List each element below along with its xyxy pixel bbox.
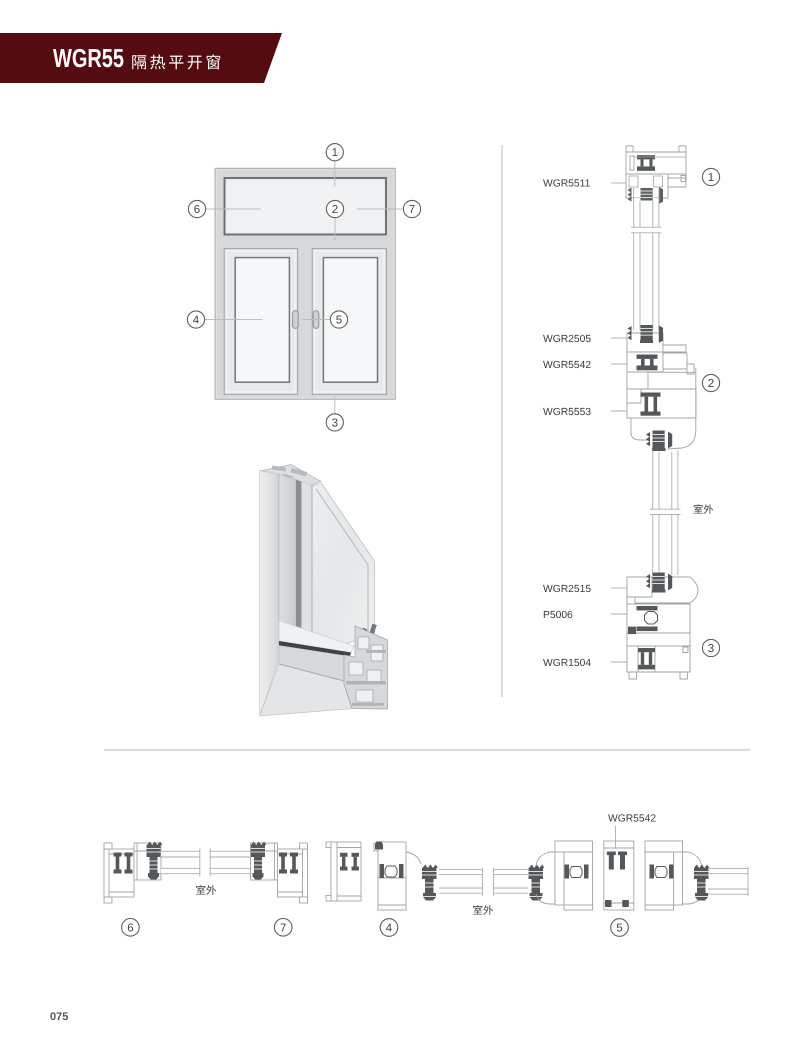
svg-text:WGR55: WGR55 xyxy=(53,43,124,73)
svg-text:4: 4 xyxy=(193,315,200,327)
svg-text:1: 1 xyxy=(708,172,714,184)
svg-text:室外: 室外 xyxy=(693,504,714,516)
svg-text:5: 5 xyxy=(616,923,622,935)
svg-text:7: 7 xyxy=(280,922,286,934)
svg-text:WGR2505: WGR2505 xyxy=(543,334,591,345)
svg-text:3: 3 xyxy=(332,417,338,429)
svg-text:2: 2 xyxy=(708,378,714,390)
svg-text:WGR5553: WGR5553 xyxy=(543,407,591,418)
svg-text:2: 2 xyxy=(332,204,338,216)
svg-text:隔热平开窗: 隔热平开窗 xyxy=(131,54,224,72)
svg-text:室外: 室外 xyxy=(196,885,217,897)
svg-text:3: 3 xyxy=(708,643,714,655)
svg-text:6: 6 xyxy=(194,204,200,216)
svg-text:WGR2515: WGR2515 xyxy=(543,584,591,595)
svg-text:WGR5542: WGR5542 xyxy=(608,814,656,825)
svg-text:6: 6 xyxy=(127,922,133,934)
svg-text:WGR5542: WGR5542 xyxy=(543,360,591,371)
svg-text:1: 1 xyxy=(332,147,338,159)
svg-text:WGR5511: WGR5511 xyxy=(543,179,591,190)
svg-text:075: 075 xyxy=(50,1011,68,1023)
svg-text:5: 5 xyxy=(336,315,342,327)
svg-text:室外: 室外 xyxy=(473,905,494,917)
svg-text:7: 7 xyxy=(409,204,415,216)
svg-text:WGR1504: WGR1504 xyxy=(543,658,591,669)
svg-text:4: 4 xyxy=(386,923,393,935)
svg-text:P5006: P5006 xyxy=(543,610,573,621)
